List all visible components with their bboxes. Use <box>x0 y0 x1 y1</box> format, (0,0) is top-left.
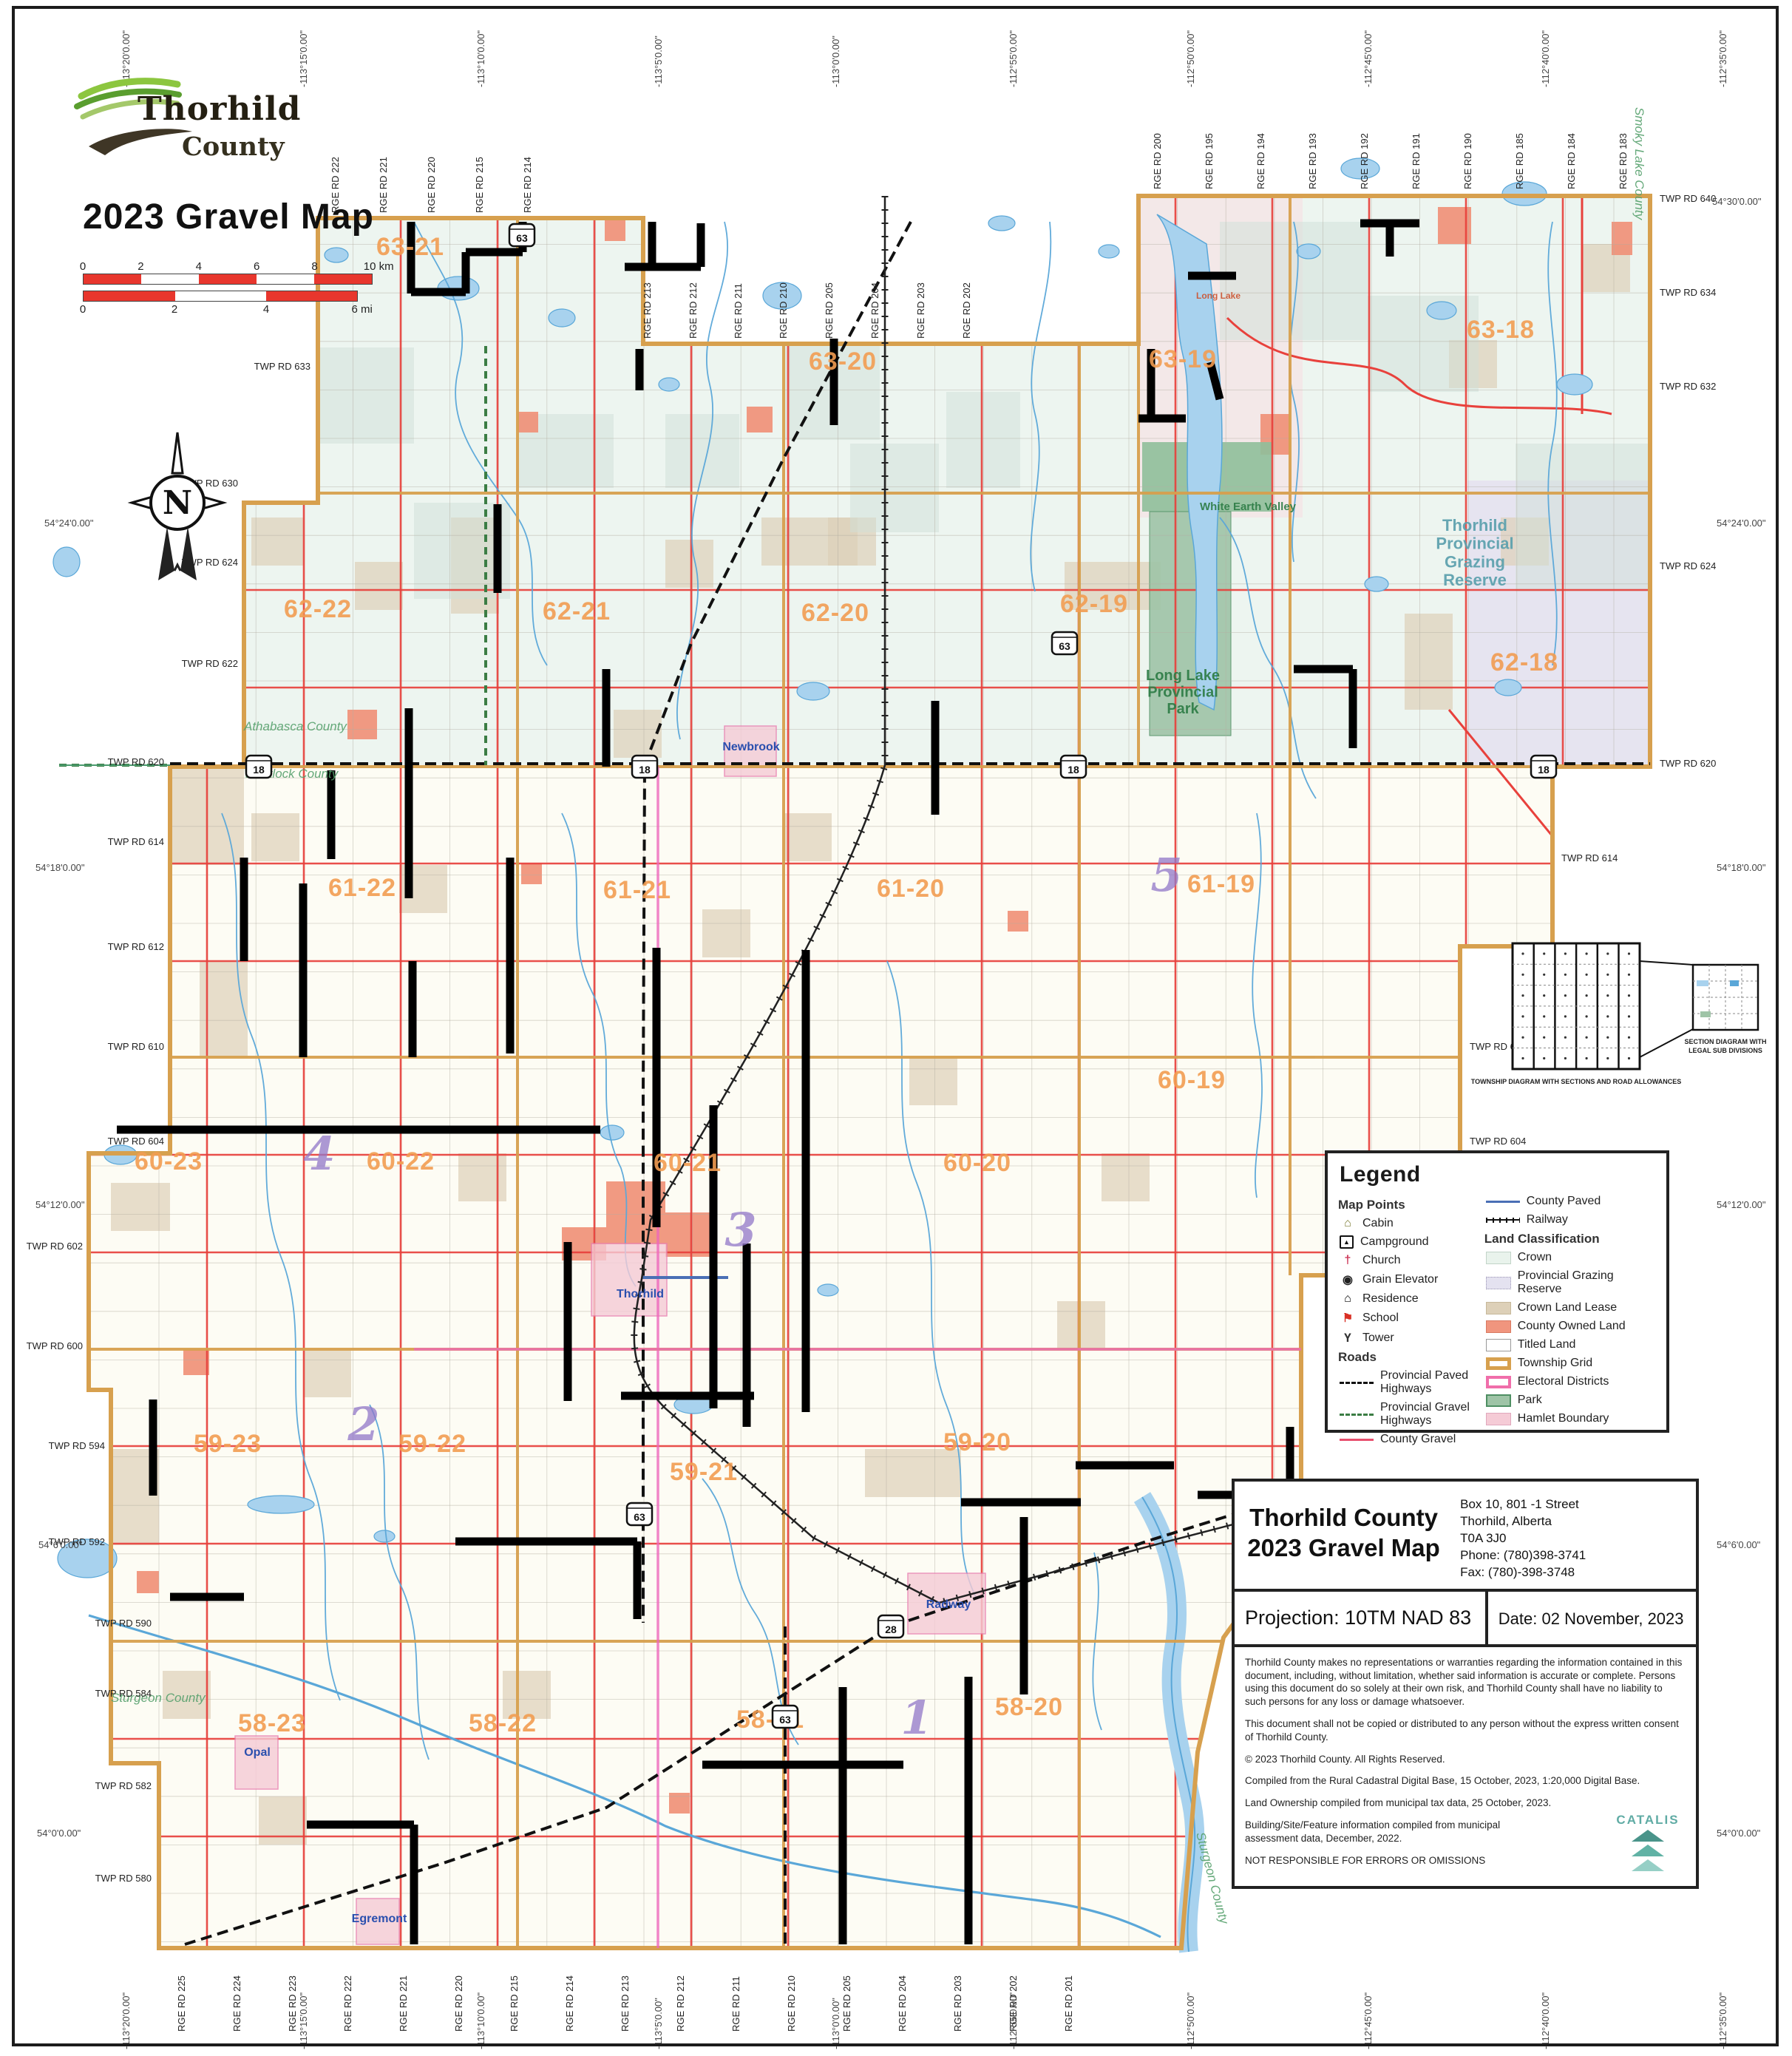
latitude-label: 54°0'0.00" <box>1717 1828 1761 1839</box>
inset-township-caption: TOWNSHIP DIAGRAM WITH SECTIONS AND ROAD … <box>1471 1078 1682 1085</box>
rge-rd-label: RGE RD 185 <box>1514 133 1525 189</box>
township-diagram-inset: SECTION DIAGRAM WITHLEGAL SUB DIVISIONST… <box>1471 943 1767 1085</box>
longitude-label: -113°10'0.00" <box>475 1992 486 2049</box>
catalis-logo: CATALIS <box>1607 1812 1689 1873</box>
legend-point-label: Grain Elevator <box>1362 1273 1438 1286</box>
township-label: 59-22 <box>398 1430 466 1458</box>
highway-shield: 63 <box>509 224 534 246</box>
legend-point: †Church <box>1340 1254 1484 1267</box>
hamlet-label: Newbrook <box>722 741 779 753</box>
legend-point: ◉Grain Elevator <box>1340 1272 1484 1287</box>
longitude-label: -112°35'0.00" <box>1717 30 1728 87</box>
rge-rd-label: RGE RD 194 <box>1255 133 1266 189</box>
rge-rd-label: RGE RD 184 <box>1566 133 1577 189</box>
legend-land: Hamlet Boundary <box>1486 1412 1656 1425</box>
legend-land: County Owned Land <box>1486 1320 1656 1333</box>
legend-point-label: Campground <box>1360 1235 1429 1249</box>
electoral-district-number: 4 <box>303 1127 335 1181</box>
legend-road-label: Provincial Paved Highways <box>1380 1369 1484 1396</box>
place-label: ThorhildProvincialGrazingReserve <box>1436 516 1513 589</box>
rge-rd-label: RGE RD 204 <box>869 282 880 339</box>
compiled-2: Land Ownership compiled from municipal t… <box>1245 1797 1686 1810</box>
township-label: 59-20 <box>943 1428 1011 1456</box>
legend-point-label: School <box>1362 1312 1399 1325</box>
legend-land: Crown <box>1486 1251 1656 1264</box>
township-label: 61-21 <box>603 876 671 904</box>
highway-shield-number: 63 <box>634 1511 645 1523</box>
township-label: 63-20 <box>809 347 877 376</box>
highway-shield: 18 <box>1061 756 1086 778</box>
township-label: 58-22 <box>469 1709 537 1737</box>
longitude-label: -113°20'0.00" <box>121 1992 132 2049</box>
legend-land-label: Park <box>1518 1394 1542 1407</box>
compass-n-label: N <box>163 484 192 522</box>
twp-rd-label: TWP RD 610 <box>108 1041 164 1052</box>
highway-shield-number: 18 <box>1538 764 1550 776</box>
longitude-label: -112°35'0.00" <box>1717 1992 1728 2049</box>
scale-tick: 10 km <box>364 260 394 273</box>
highway-shield-number: 18 <box>253 764 265 776</box>
info-disclaimer: Thorhild County makes no representations… <box>1235 1647 1696 1887</box>
township-label: 63-18 <box>1467 316 1535 344</box>
highway-shield-number: 63 <box>516 232 528 244</box>
legend-point: ⌂Residence <box>1340 1292 1484 1306</box>
twp-rd-label: TWP RD 634 <box>1660 287 1716 298</box>
rge-rd-label: RGE RD 215 <box>474 157 485 213</box>
latitude-label: 54°24'0.00" <box>1717 518 1766 529</box>
highway-shield: 63 <box>627 1503 652 1525</box>
rge-rd-label: RGE RD 214 <box>564 1975 575 2032</box>
sw-col-swatch <box>1486 1320 1511 1333</box>
longitude-label: -112°40'0.00" <box>1540 30 1551 87</box>
legend-land: Park <box>1486 1394 1656 1407</box>
legend-point-label: Tower <box>1362 1331 1394 1345</box>
catalis-wordmark: CATALIS <box>1607 1812 1689 1828</box>
township-label: 60-22 <box>367 1147 435 1175</box>
township-label: 63-19 <box>1149 345 1217 373</box>
residence-icon: ⌂ <box>1340 1292 1356 1306</box>
highway-shield-number: 63 <box>779 1714 791 1726</box>
rge-rd-label: RGE RD 192 <box>1359 133 1370 189</box>
township-label: 58-20 <box>995 1693 1063 1721</box>
rge-rd-label: RGE RD 214 <box>522 157 533 213</box>
highway-shield-number: 18 <box>639 764 651 776</box>
legend-point: YTower <box>1340 1331 1484 1345</box>
rge-rd-label: RGE RD 224 <box>231 1975 242 2032</box>
sw-pgr-swatch <box>1486 1277 1511 1289</box>
legend-land-label: Electoral Districts <box>1518 1375 1609 1388</box>
place-label: Long Lake <box>1196 291 1241 301</box>
legend-land: Titled Land <box>1486 1338 1656 1351</box>
township-label: 61-20 <box>877 875 945 903</box>
sw-titled-swatch <box>1486 1339 1511 1351</box>
latitude-label: 54°24'0.00" <box>44 518 94 529</box>
legend-title: Legend <box>1340 1162 1656 1187</box>
rge-rd-label: RGE RD 220 <box>426 157 437 213</box>
rge-rd-label: RGE RD 203 <box>915 282 926 339</box>
rge-rd-label: RGE RD 222 <box>342 1975 353 2032</box>
legend-land-label: Crown <box>1518 1251 1552 1264</box>
longitude-label: -113°15'0.00" <box>298 1992 309 2049</box>
legend-map-points-title: Map Points <box>1338 1198 1484 1212</box>
inset-section-caption: LEGAL SUB DIVISIONS <box>1689 1047 1762 1054</box>
longitude-label: -113°0'0.00" <box>830 35 841 87</box>
twp-rd-label: TWP RD 632 <box>1660 381 1716 392</box>
sw-cll-swatch <box>1486 1302 1511 1314</box>
scale-bar: 0246810 km 0246 mi <box>83 260 393 316</box>
highway-shield-number: 28 <box>885 1624 897 1635</box>
latitude-label: 54°6'0.00" <box>1717 1539 1761 1550</box>
rge-rd-label: RGE RD 205 <box>824 282 835 339</box>
tower-icon: Y <box>1340 1331 1356 1345</box>
church-icon: † <box>1340 1254 1356 1267</box>
county-logo: Thorhild County <box>67 58 310 191</box>
legend-road: Provincial Paved Highways <box>1340 1369 1484 1396</box>
rge-rd-label: RGE RD 191 <box>1411 133 1422 189</box>
twp-rd-label: TWP RD 580 <box>95 1873 152 1884</box>
rge-rd-label: RGE RD 205 <box>841 1975 852 2032</box>
highway-shield-number: 18 <box>1068 764 1079 776</box>
legend-land-title: Land Classification <box>1484 1232 1656 1246</box>
catalis-chevrons-icon <box>1607 1830 1689 1873</box>
rge-rd-label: RGE RD 204 <box>897 1975 908 2032</box>
twp-rd-label: TWP RD 594 <box>49 1440 105 1451</box>
legend-lines-list: County PavedRailway <box>1484 1195 1656 1227</box>
highway-shield: 18 <box>632 756 657 778</box>
township-label: 60-23 <box>135 1147 203 1175</box>
electoral-district-number: 5 <box>1150 848 1182 902</box>
rge-rd-label: RGE RD 215 <box>509 1975 520 2032</box>
highway-shield: 18 <box>1531 756 1556 778</box>
township-label: 62-21 <box>543 597 611 625</box>
twp-rd-label: TWP RD 604 <box>108 1136 164 1147</box>
grain-elevator-icon: ◉ <box>1340 1272 1356 1287</box>
rge-rd-label: RGE RD 200 <box>1152 133 1163 189</box>
legend-roads-title: Roads <box>1338 1350 1484 1365</box>
scale-tick: 8 <box>311 260 317 273</box>
township-label: 60-19 <box>1158 1066 1226 1094</box>
twp-rd-label: TWP RD 633 <box>254 361 310 372</box>
legend-point: ⚑School <box>1340 1311 1484 1326</box>
rge-rd-label: RGE RD 213 <box>642 282 653 339</box>
latitude-label: 54°12'0.00" <box>1717 1199 1766 1210</box>
twp-rd-label: TWP RD 584 <box>95 1688 152 1699</box>
legend-land-label: Titled Land <box>1518 1338 1576 1351</box>
compiled-3: Building/Site/Feature information compil… <box>1245 1819 1555 1845</box>
scale-km-bar <box>83 274 373 285</box>
legend-land-label: Provincial Grazing Reserve <box>1518 1269 1656 1296</box>
legend-point: ▲Campground <box>1340 1235 1484 1249</box>
legend-land-label: Crown Land Lease <box>1518 1301 1617 1314</box>
logo-org-name: Thorhild <box>138 90 301 128</box>
twp-rd-label: TWP RD 622 <box>182 658 238 669</box>
township-label: 59-21 <box>670 1458 738 1486</box>
electoral-district-number: 1 <box>900 1691 932 1745</box>
legend-line: County Paved <box>1486 1195 1656 1208</box>
ln-cp-swatch <box>1486 1201 1520 1203</box>
legend-land: Township Grid <box>1486 1357 1656 1370</box>
rge-rd-label: RGE RD 213 <box>620 1975 631 2032</box>
legend-road-label: Provincial Gravel Highways <box>1380 1401 1484 1428</box>
school-icon: ⚑ <box>1340 1311 1356 1326</box>
rge-rd-label: RGE RD 221 <box>398 1975 409 2032</box>
latitude-label: 54°18'0.00" <box>1717 862 1766 873</box>
scale-tick: 4 <box>263 303 269 316</box>
rge-rd-label: RGE RD 220 <box>453 1975 464 2032</box>
rge-rd-label: RGE RD 190 <box>1462 133 1473 189</box>
legend-road: County Gravel <box>1340 1433 1484 1446</box>
longitude-label: -112°45'0.00" <box>1362 1992 1374 2049</box>
twp-rd-label: TWP RD 614 <box>108 836 164 847</box>
highway-shield-number: 63 <box>1059 640 1070 652</box>
twp-rd-label: TWP RD 620 <box>1660 758 1716 769</box>
latitude-label: 54°6'0.00" <box>38 1539 83 1550</box>
address-line: Fax: (780)-398-3748 <box>1460 1564 1689 1581</box>
electoral-district-number: 2 <box>347 1397 379 1451</box>
rge-rd-label: RGE RD 201 <box>1063 1975 1074 2032</box>
scale-tick: 6 mi <box>351 303 372 316</box>
place-label: White Earth Valley <box>1200 501 1297 513</box>
campground-icon: ▲ <box>1340 1235 1354 1249</box>
township-label: 62-18 <box>1490 648 1558 676</box>
rge-rd-label: RGE RD 210 <box>786 1975 797 2032</box>
sw-hamlet-swatch <box>1486 1413 1511 1425</box>
scale-km-ticks: 0246810 km <box>83 260 393 274</box>
longitude-label: -113°5'0.00" <box>653 35 664 87</box>
legend-land: Provincial Grazing Reserve <box>1486 1269 1656 1296</box>
legend-line-label: Railway <box>1527 1213 1568 1227</box>
legend-panel: Legend Map Points ⌂Cabin▲Campground†Chur… <box>1325 1150 1669 1433</box>
twp-rd-label: TWP RD 612 <box>108 941 164 952</box>
info-panel: Thorhild County 2023 Gravel Map Box 10, … <box>1232 1479 1699 1889</box>
scale-tick: 2 <box>172 303 177 316</box>
township-label: 58-23 <box>238 1709 306 1737</box>
legend-point-label: Residence <box>1362 1292 1419 1306</box>
twp-rd-label: TWP RD 614 <box>1561 852 1618 864</box>
highway-shield: 63 <box>1052 632 1077 654</box>
township-label: 62-20 <box>801 599 869 627</box>
legend-line: Railway <box>1486 1213 1656 1227</box>
twp-rd-label: TWP RD 590 <box>95 1618 152 1629</box>
township-label: 59-23 <box>194 1430 262 1458</box>
legend-land-label: Hamlet Boundary <box>1518 1412 1609 1425</box>
latitude-label: 54°18'0.00" <box>35 862 85 873</box>
rge-rd-label: RGE RD 210 <box>778 282 789 339</box>
scale-mi-bar <box>83 291 358 302</box>
twp-rd-label: TWP RD 604 <box>1470 1136 1526 1147</box>
ln-pg-swatch <box>1340 1414 1374 1416</box>
rge-rd-label: RGE RD 183 <box>1618 133 1629 189</box>
legend-road-label: County Gravel <box>1380 1433 1456 1446</box>
copyright-line: © 2023 Thorhild County. All Rights Reser… <box>1245 1753 1686 1766</box>
info-date: Date: 02 November, 2023 <box>1488 1592 1696 1644</box>
address-line: T0A 3J0 <box>1460 1530 1689 1547</box>
legend-land-list: CrownProvincial Grazing ReserveCrown Lan… <box>1484 1251 1656 1425</box>
info-address: Box 10, 801 -1 StreetThorhild, AlbertaT0… <box>1447 1482 1696 1589</box>
disclaimer-1: Thorhild County makes no representations… <box>1245 1656 1686 1709</box>
info-title: Thorhild County 2023 Gravel Map <box>1235 1482 1447 1589</box>
address-line: Thorhild, Alberta <box>1460 1513 1689 1530</box>
hamlet-label: Radway <box>926 1598 971 1611</box>
longitude-label: -112°55'0.00" <box>1008 1992 1019 2049</box>
legend-point: ⌂Cabin <box>1340 1217 1484 1230</box>
rge-rd-label: RGE RD 202 <box>961 282 972 339</box>
ln-cg-swatch <box>1340 1439 1374 1441</box>
rge-rd-label: RGE RD 203 <box>952 1975 963 2032</box>
township-label: 60-20 <box>943 1149 1011 1177</box>
rge-rd-label: RGE RD 212 <box>675 1975 686 2032</box>
twp-rd-label: TWP RD 602 <box>27 1241 83 1252</box>
legend-land: Crown Land Lease <box>1486 1301 1656 1314</box>
scale-tick: 2 <box>138 260 143 273</box>
neighbour-county-label: Athabasca County <box>243 719 347 733</box>
longitude-label: -113°5'0.00" <box>653 1998 664 2049</box>
rge-rd-label: RGE RD 225 <box>176 1975 187 2032</box>
longitude-label: -112°55'0.00" <box>1008 30 1019 87</box>
info-projection: Projection: 10TM NAD 83 <box>1235 1592 1488 1644</box>
legend-land: Electoral Districts <box>1486 1375 1656 1388</box>
legend-point-label: Cabin <box>1362 1217 1394 1230</box>
scale-tick: 0 <box>80 260 86 273</box>
rge-rd-label: RGE RD 195 <box>1204 133 1215 189</box>
rge-rd-label: RGE RD 211 <box>730 1976 741 2032</box>
longitude-label: -112°50'0.00" <box>1185 1992 1196 2049</box>
scale-tick: 0 <box>80 303 86 316</box>
rge-rd-label: RGE RD 223 <box>287 1975 298 2032</box>
township-label: 62-19 <box>1060 590 1128 618</box>
highway-shield: 28 <box>878 1615 903 1638</box>
longitude-label: -113°0'0.00" <box>830 1998 841 2049</box>
scale-tick: 4 <box>196 260 202 273</box>
inset-section-caption: SECTION DIAGRAM WITH <box>1685 1038 1767 1045</box>
address-line: Phone: (780)398-3741 <box>1460 1547 1689 1564</box>
twp-rd-label: TWP RD 620 <box>108 756 164 767</box>
township-label: 63-21 <box>376 233 444 261</box>
legend-roads-list: Provincial Paved HighwaysProvincial Grav… <box>1338 1369 1484 1446</box>
electoral-district-number: 3 <box>724 1203 756 1257</box>
info-title-line2: 2023 Gravel Map <box>1247 1534 1440 1561</box>
township-label: 61-22 <box>328 874 396 902</box>
latitude-label: 54°0'0.00" <box>37 1828 81 1839</box>
cabin-icon: ⌂ <box>1340 1217 1356 1230</box>
hamlet-label: Opal <box>244 1746 271 1759</box>
legend-point-label: Church <box>1362 1254 1401 1267</box>
longitude-label: -113°10'0.00" <box>475 30 486 87</box>
longitude-label: -112°40'0.00" <box>1540 1992 1551 2049</box>
rge-rd-label: RGE RD 212 <box>688 282 699 339</box>
sw-crown-swatch <box>1486 1252 1511 1264</box>
info-title-line1: Thorhild County <box>1249 1504 1438 1531</box>
highway-shield: 63 <box>773 1706 798 1728</box>
sw-park-swatch <box>1486 1394 1511 1407</box>
sw-twp-swatch <box>1486 1357 1511 1370</box>
township-label: 61-19 <box>1187 870 1255 898</box>
twp-rd-label: TWP RD 640 <box>1660 193 1716 204</box>
address-line: Box 10, 801 -1 Street <box>1460 1496 1689 1513</box>
twp-rd-label: TWP RD 624 <box>1660 560 1716 571</box>
compiled-1: Compiled from the Rural Cadastral Digita… <box>1245 1774 1686 1788</box>
hamlet-label: Thorhild <box>617 1288 664 1300</box>
twp-rd-label: TWP RD 582 <box>95 1780 152 1791</box>
longitude-label: -112°45'0.00" <box>1362 30 1374 87</box>
rge-rd-label: RGE RD 221 <box>378 157 389 213</box>
legend-line-label: County Paved <box>1527 1195 1601 1208</box>
ln-pp-swatch <box>1340 1382 1374 1384</box>
legend-road: Provincial Gravel Highways <box>1340 1401 1484 1428</box>
township-label: 62-22 <box>284 595 352 623</box>
legend-map-points-list: ⌂Cabin▲Campground†Church◉Grain Elevator⌂… <box>1338 1217 1484 1345</box>
logo-org-county: County <box>182 132 285 162</box>
legend-land-label: Township Grid <box>1518 1357 1592 1370</box>
twp-rd-label: TWP RD 600 <box>27 1340 83 1351</box>
ln-rail-swatch <box>1486 1218 1520 1223</box>
legend-land-label: County Owned Land <box>1518 1320 1626 1333</box>
latitude-label: 54°12'0.00" <box>35 1199 85 1210</box>
longitude-label: -112°50'0.00" <box>1185 30 1196 87</box>
rge-rd-label: RGE RD 211 <box>733 283 744 339</box>
neighbour-county-label: Smoky Lake County <box>1632 107 1646 221</box>
latitude-label: 54°30'0.00" <box>1712 196 1762 207</box>
hamlet-label: Egremont <box>352 1913 407 1925</box>
highway-shield: 18 <box>246 756 271 778</box>
scale-tick: 6 <box>254 260 259 273</box>
page-title: 2023 Gravel Map <box>83 197 374 237</box>
disclaimer-2: This document shall not be copied or dis… <box>1245 1717 1686 1744</box>
rge-rd-label: RGE RD 193 <box>1307 133 1318 189</box>
sw-ed-swatch <box>1486 1376 1511 1388</box>
township-label: 60-21 <box>654 1149 722 1177</box>
scale-mi-ticks: 0246 mi <box>83 303 393 316</box>
